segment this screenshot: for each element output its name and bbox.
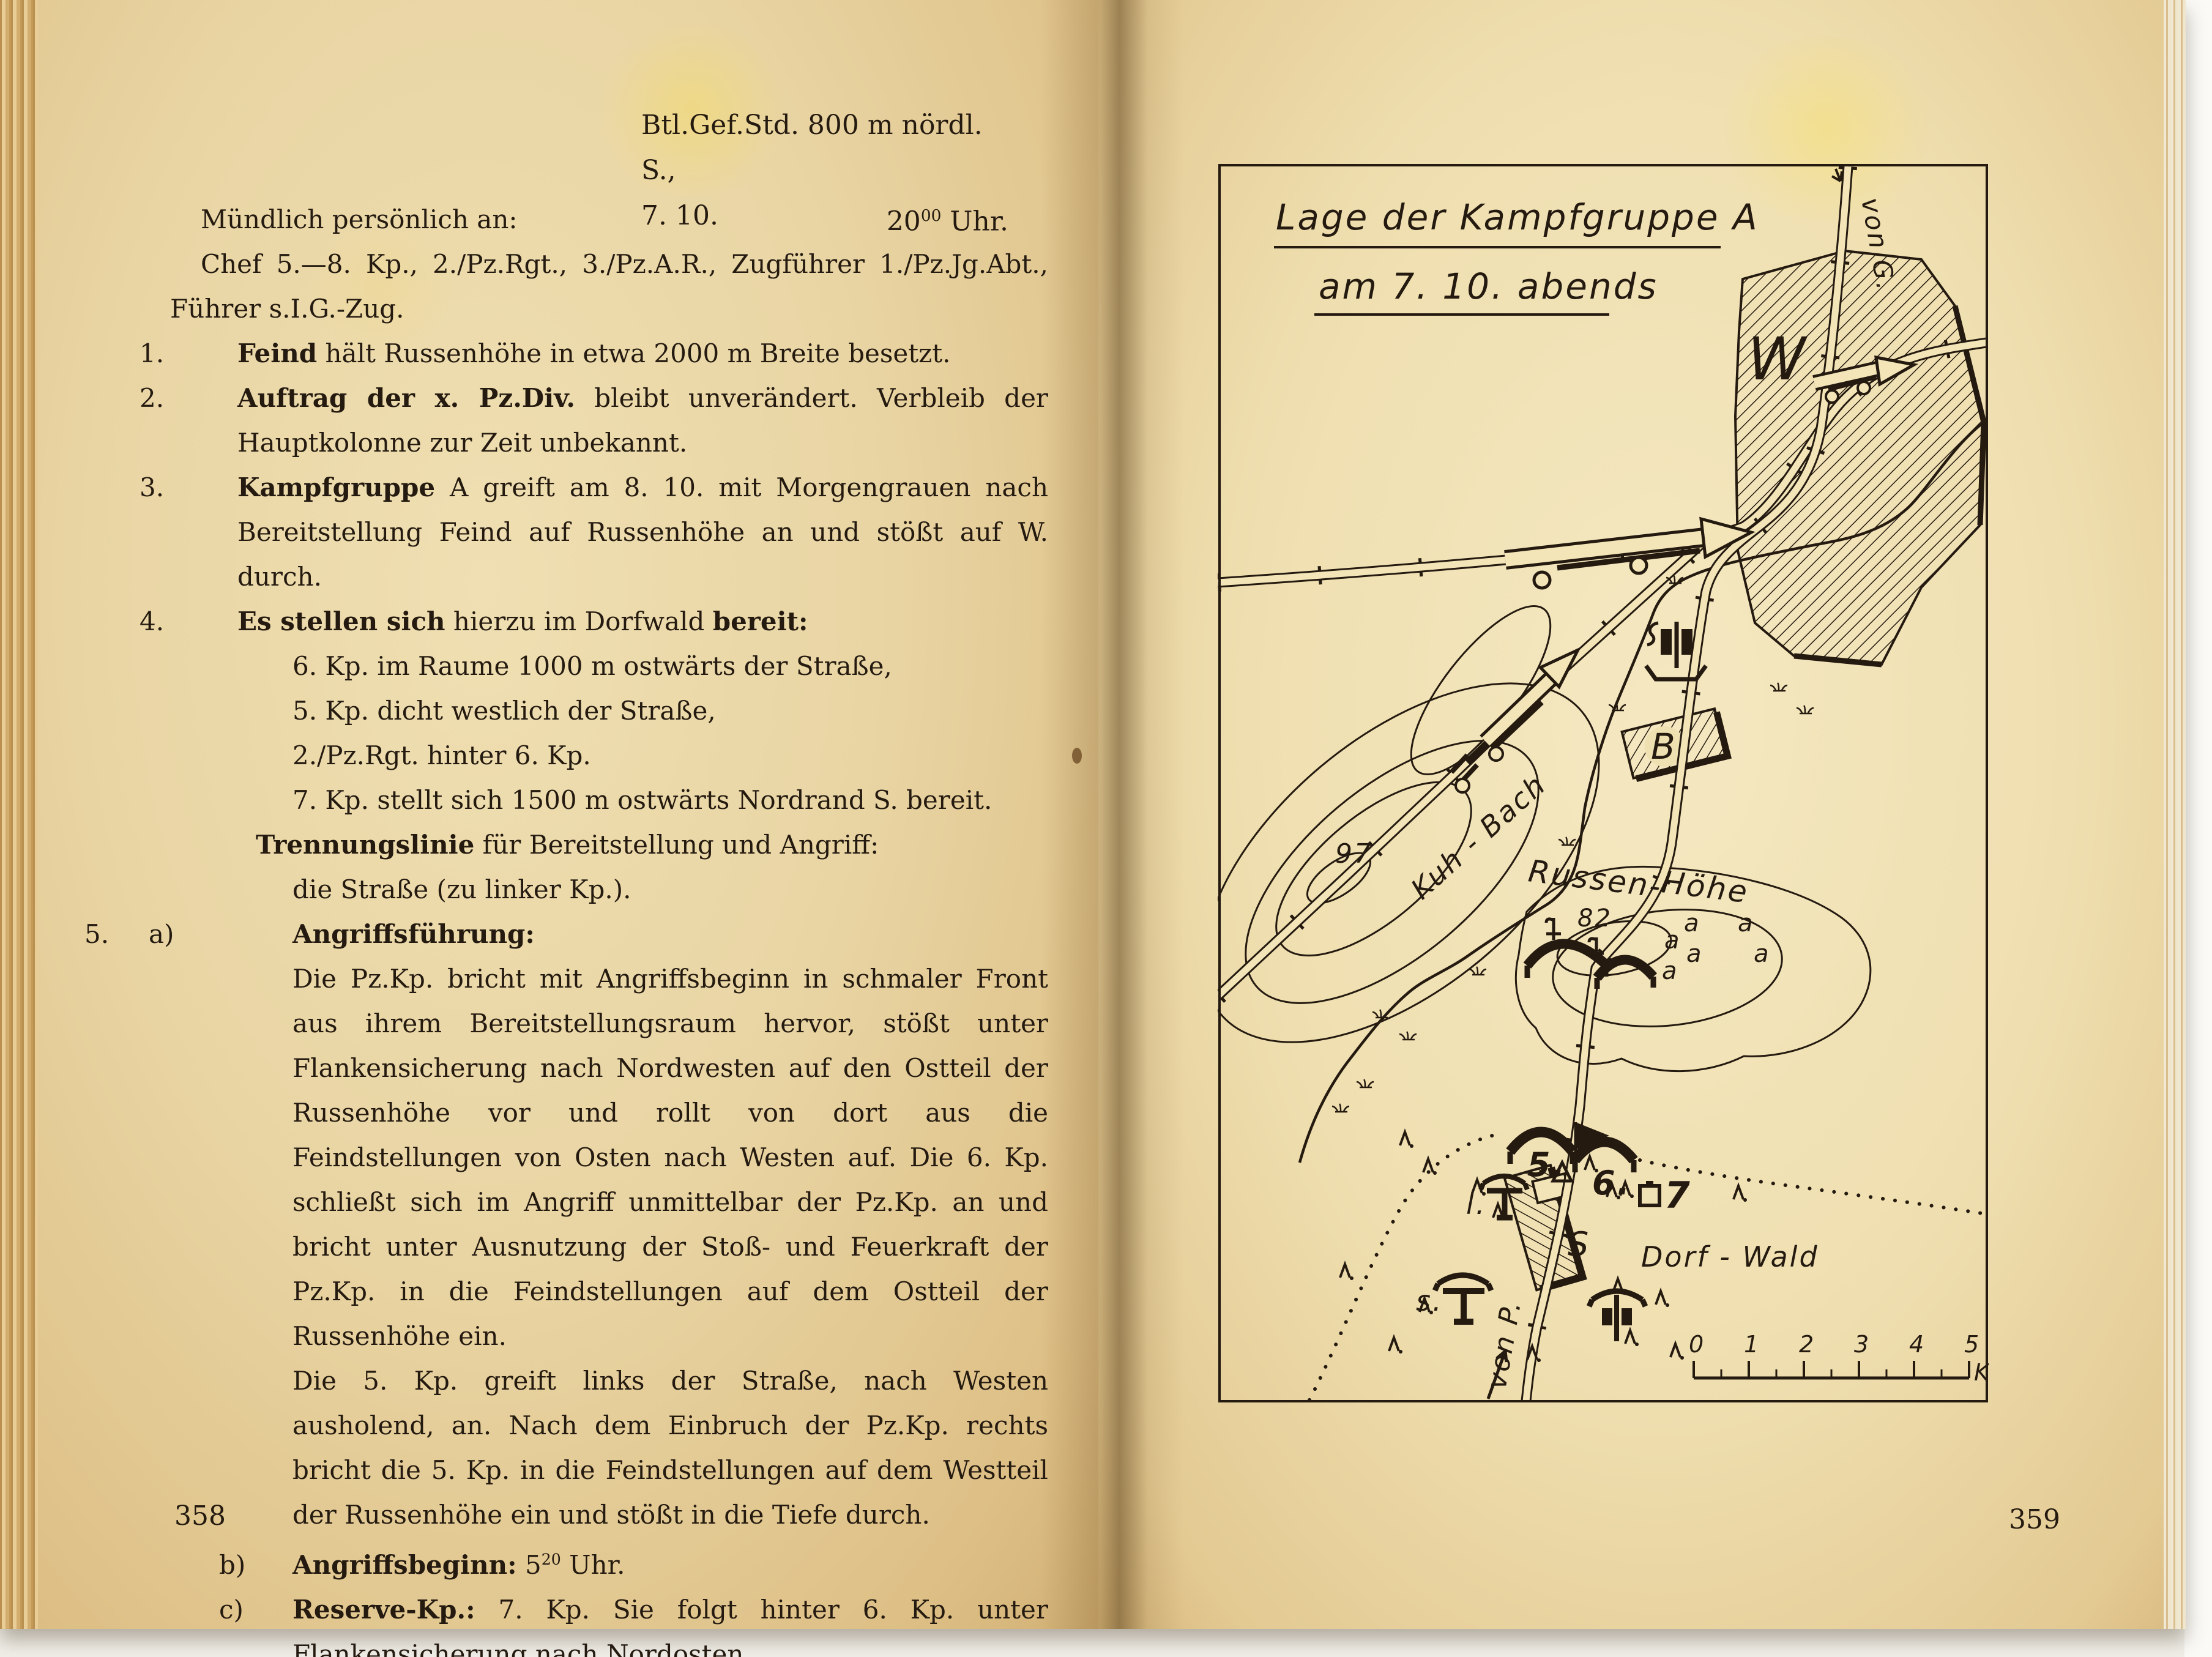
- book-gutter: [1040, 0, 1184, 1629]
- town-w-area: [1735, 251, 1984, 665]
- list-item: b)Angriffsbeginn: 520 Uhr.: [78, 1537, 1048, 1587]
- list-item: 4.Es stellen sich hierzu im Dorfwald ber…: [78, 599, 1048, 644]
- text-line: 5. Kp. dicht westlich der Straße,: [292, 688, 1048, 733]
- svg-text:a: a: [1664, 926, 1681, 955]
- list-item: 1.Feind hält Russenhöhe in etwa 2000 m B…: [78, 331, 1048, 376]
- map-title-line2: am 7. 10. abends: [1319, 266, 1658, 307]
- forest-label: Dorf - Wald: [1641, 1240, 1819, 1273]
- page-number-right: 359: [2009, 1504, 2060, 1535]
- svg-text:a: a: [1686, 940, 1704, 968]
- svg-text:a: a: [1684, 909, 1701, 937]
- heavy-gun-label: s.: [1416, 1284, 1443, 1317]
- bush-letters: a a a a a a: [1662, 909, 1771, 985]
- heavy-ig-symbol: [1435, 1275, 1491, 1322]
- unit-7-label: 7: [1664, 1174, 1692, 1217]
- page-number-left: 358: [174, 1500, 226, 1532]
- order-paragraphs: Mündlich persönlich an:Chef 5.—8. Kp., 2…: [78, 197, 1048, 1657]
- map-title-line1: Lage der Kampfgruppe A: [1276, 196, 1759, 238]
- hill-label-hoehe: Höhe: [1660, 864, 1751, 910]
- text-line: die Straße (zu linker Kp.).: [292, 867, 1048, 912]
- town-w-label: W: [1748, 325, 1808, 393]
- text-line: 6. Kp. im Raume 1000 m ostwärts der Stra…: [292, 644, 1048, 688]
- road-from-p-label: von P.: [1481, 1297, 1528, 1391]
- text-line: Mündlich persönlich an:: [201, 197, 1048, 242]
- village-b-label: B: [1651, 726, 1677, 767]
- situation-map: Lage der Kampfgruppe A am 7. 10. abends …: [1218, 159, 1989, 1404]
- svg-text:a: a: [1662, 957, 1679, 985]
- svg-text:1: 1: [1744, 1331, 1760, 1358]
- hill-label-russen: Russen-: [1527, 853, 1664, 904]
- light-gun-label: l.: [1466, 1188, 1486, 1221]
- svg-text:4: 4: [1909, 1331, 1926, 1358]
- text-line: Die Pz.Kp. bricht mit Angriffsbeginn in …: [292, 956, 1048, 1358]
- list-item: 3.Kampfgruppe A greift am 8. 10. mit Mor…: [78, 465, 1048, 599]
- unit-7-square: [1640, 1181, 1659, 1205]
- scanned-book-spread: Btl.Gef.Std. 800 m nördl. S., 7. 10. 200…: [0, 0, 2212, 1657]
- text-line: Trennungslinie für Bereitstellung und An…: [256, 822, 1048, 867]
- page-stack-edge: [0, 0, 43, 1629]
- unit-5-label: 5.: [1527, 1145, 1566, 1184]
- height-97-label: 97: [1335, 838, 1373, 869]
- page-edge: [2164, 0, 2186, 1629]
- svg-text:a: a: [1754, 940, 1771, 968]
- text-line: Chef 5.—8. Kp., 2./Pz.Rgt., 3./Pz.A.R., …: [170, 242, 1048, 331]
- svg-text:2: 2: [1799, 1331, 1815, 1358]
- village-s-label: S: [1568, 1225, 1590, 1264]
- height-82-label: 82: [1577, 904, 1612, 933]
- svg-text:5: 5: [1964, 1331, 1981, 1358]
- svg-text:3: 3: [1854, 1331, 1871, 1358]
- text-line: 7. Kp. stellt sich 1500 m ostwärts Nordr…: [292, 778, 1048, 822]
- header-location: Btl.Gef.Std. 800 m nördl. S.,: [641, 103, 1008, 193]
- unit-6-label: 6.: [1592, 1164, 1631, 1202]
- limbered-ig-symbol: [1589, 1291, 1645, 1341]
- text-line: 2./Pz.Rgt. hinter 6. Kp.: [292, 733, 1048, 778]
- svg-text:a: a: [1738, 909, 1755, 937]
- book: Btl.Gef.Std. 800 m nördl. S., 7. 10. 200…: [0, 0, 2186, 1629]
- list-item: 5.a)Angriffsführung:: [78, 912, 1048, 956]
- list-item: 2.Auftrag der x. Pz.Div. bleibt unveränd…: [78, 376, 1048, 465]
- list-item: c)Reserve-Kp.: 7. Kp. Sie folgt hinter 6…: [78, 1587, 1048, 1657]
- svg-text:0: 0: [1689, 1331, 1705, 1358]
- scale-bar: 0 1 2 3 4 5 Km: [1689, 1331, 1989, 1386]
- text-line: Die 5. Kp. greift links der Straße, nach…: [292, 1358, 1048, 1537]
